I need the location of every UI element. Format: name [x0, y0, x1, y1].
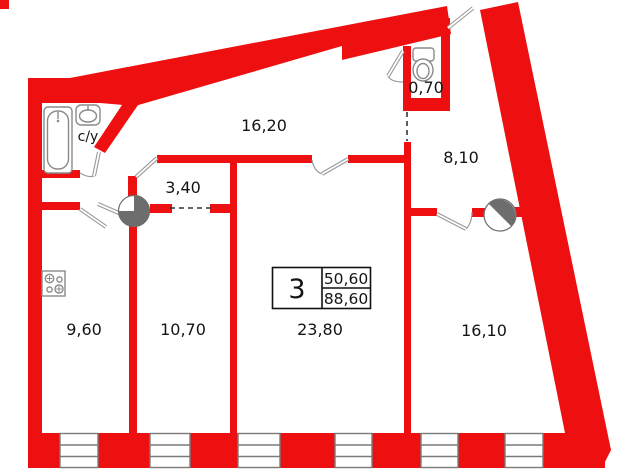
- wall-segment: [458, 433, 505, 468]
- room-label-corridor: 16,20: [241, 116, 287, 135]
- bottom-window-wall: [28, 433, 605, 468]
- vent-shaft-right-icon: [484, 199, 516, 231]
- floor-plan: 16,20 0,70 8,10 3,40 9,60 10,70 23,80 16…: [0, 0, 635, 476]
- toilet-icon: [413, 48, 434, 81]
- wall-stub: [150, 204, 172, 213]
- apartment-info-box: 3 50,60 88,60: [273, 268, 371, 309]
- room-label-bathroom: с/у: [78, 129, 99, 145]
- wall-wc-left: [403, 46, 411, 106]
- wall-segment: [28, 433, 60, 468]
- room-label-room-b: 23,80: [297, 320, 343, 339]
- room-label-hall: 8,10: [443, 148, 479, 167]
- wall-stub: [128, 176, 137, 198]
- wall-segment: [372, 433, 421, 468]
- wall-stub: [210, 204, 233, 213]
- window-icon: [238, 434, 280, 468]
- sink-icon: [76, 105, 100, 125]
- wall-partition-c: [129, 226, 137, 433]
- wall-segment: [190, 433, 238, 468]
- window-icon: [60, 434, 98, 468]
- room-label-wc: 0,70: [408, 78, 444, 97]
- room-label-inner-corridor: 3,40: [165, 178, 201, 197]
- window-icon: [505, 434, 543, 468]
- wall-partition-a: [230, 155, 237, 433]
- bathtub-icon: [44, 107, 72, 173]
- room-label-room-a: 10,70: [160, 320, 206, 339]
- corner-artifact: [0, 0, 9, 9]
- wall-kitchen-top: [42, 202, 80, 210]
- info-total-area: 88,60: [324, 290, 368, 308]
- info-rooms-count: 3: [288, 274, 305, 305]
- vent-shaft-left-icon: [119, 196, 150, 227]
- wall-left: [28, 78, 42, 468]
- wall-segment: [543, 433, 605, 468]
- room-label-kitchen: 9,60: [66, 320, 102, 339]
- wall-wc-right: [441, 18, 450, 111]
- window-icon: [335, 434, 372, 468]
- stove-icon: [42, 271, 65, 296]
- window-icon: [150, 434, 190, 468]
- window-icon: [421, 434, 458, 468]
- wall-segment: [280, 433, 335, 468]
- room-label-room-c: 16,10: [461, 321, 507, 340]
- wall-stub: [472, 208, 485, 217]
- wall-partition-b: [404, 142, 411, 433]
- info-living-area: 50,60: [324, 270, 368, 288]
- wall-corridor-right: [348, 155, 411, 163]
- wall-segment: [98, 433, 150, 468]
- wall-hall-bottom: [411, 208, 437, 216]
